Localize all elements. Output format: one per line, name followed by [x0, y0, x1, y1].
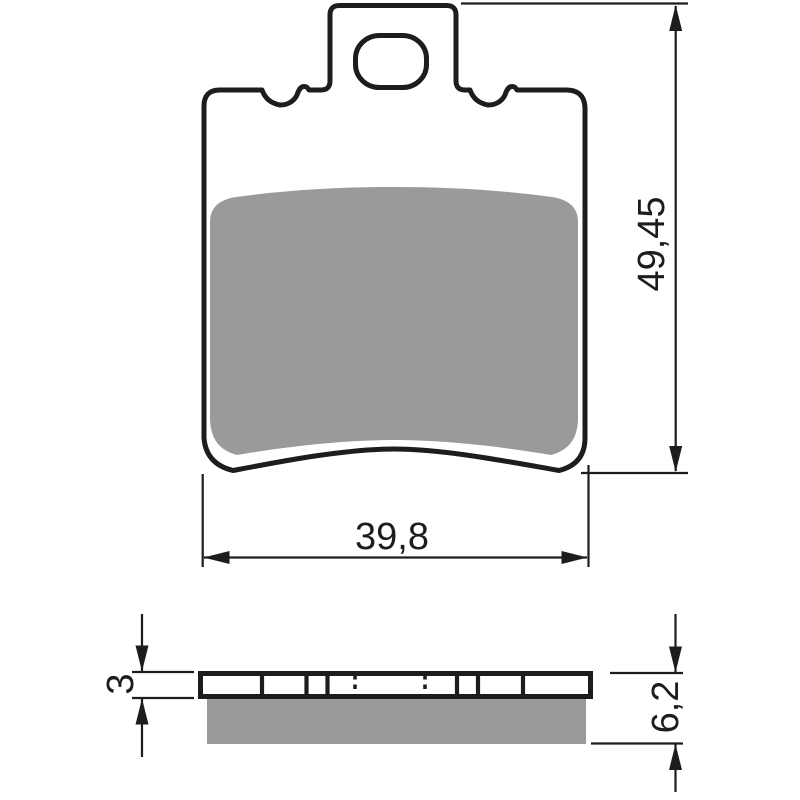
- pad-height-label: 49,45: [631, 196, 673, 291]
- total-thickness-label: 6,2: [645, 681, 687, 734]
- arrow-right: [562, 551, 588, 564]
- arrow-down: [136, 646, 149, 672]
- backplate-side: [201, 674, 591, 697]
- arrow-down: [669, 446, 682, 472]
- mounting-hole: [356, 36, 427, 88]
- arrow-up: [669, 5, 682, 31]
- brake-pad-technical-drawing: 49,45 39,8: [0, 0, 800, 800]
- drawing-canvas: 49,45 39,8: [0, 0, 800, 800]
- arrow-up: [669, 744, 682, 770]
- dimension-total-thickness: 6,2: [591, 614, 687, 792]
- dimension-pad-width: 39,8: [203, 465, 589, 567]
- front-view: [204, 6, 585, 471]
- dimension-backplate-thickness: 3: [100, 614, 194, 757]
- arrow-down: [669, 647, 682, 673]
- side-view: [201, 674, 591, 745]
- friction-material-side: [207, 699, 586, 744]
- pad-width-label: 39,8: [355, 516, 429, 558]
- arrow-left: [204, 551, 230, 564]
- backplate-thickness-label: 3: [100, 673, 142, 694]
- friction-material-front: [210, 187, 578, 455]
- arrow-up: [136, 699, 149, 725]
